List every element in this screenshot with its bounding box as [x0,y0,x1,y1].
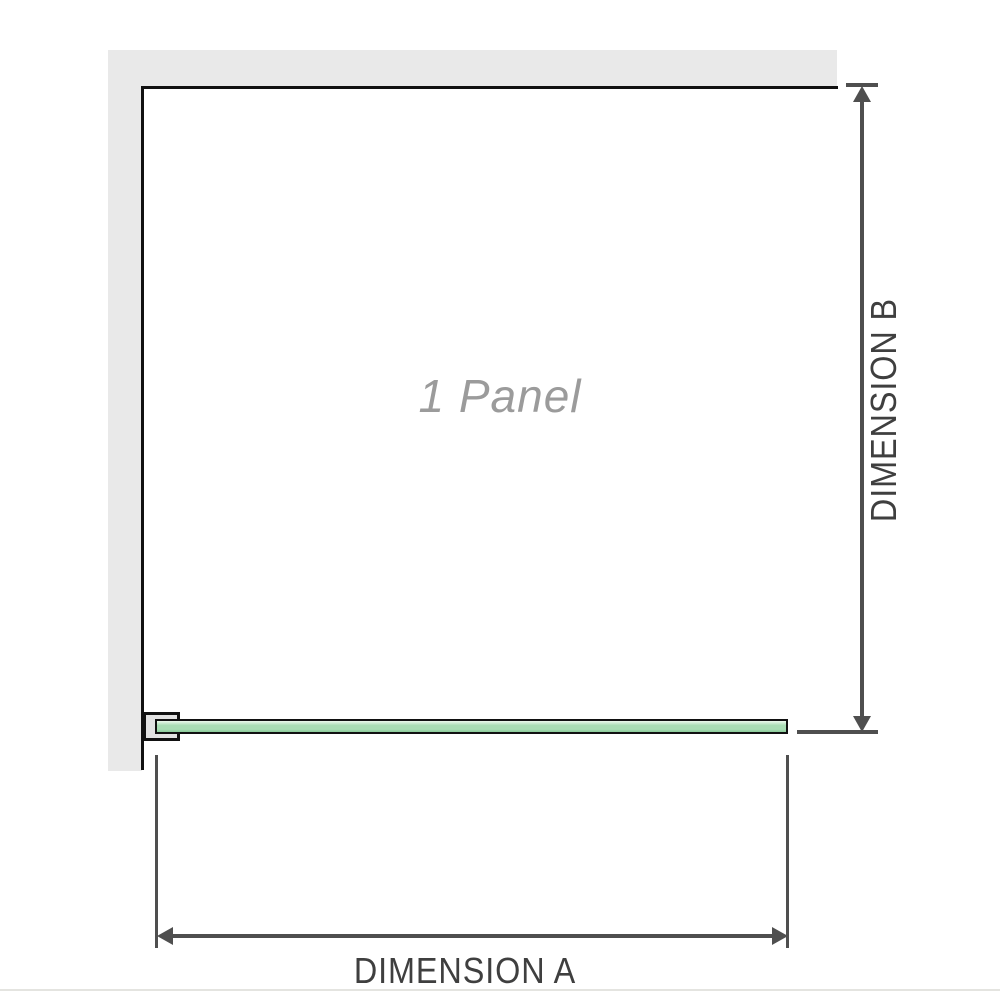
dimension-a-arrowhead-left-icon [157,927,173,945]
panel-dimension-diagram: 1 Panel DIMENSION B DIMENSION A [0,0,1000,1000]
left-wall-inner-edge [141,86,144,770]
dimension-b-arrowhead-up-icon [853,86,871,102]
dimension-a-left-extension-line [155,755,158,948]
bottom-divider [0,989,1000,991]
top-wall-inner-edge [141,86,838,89]
glass-panel-bar [155,719,788,734]
dimension-a-label: DIMENSION A [354,950,576,992]
dimension-a-right-extension-line [786,755,789,948]
left-wall [108,87,142,771]
dimension-a-arrowhead-right-icon [772,927,788,945]
panel-count-label: 1 Panel [418,369,581,423]
dimension-b-label: DIMENSION B [863,298,905,522]
dimension-a-arrow-line [170,934,775,938]
top-wall [108,50,837,87]
dimension-b-arrowhead-down-icon [853,716,871,732]
